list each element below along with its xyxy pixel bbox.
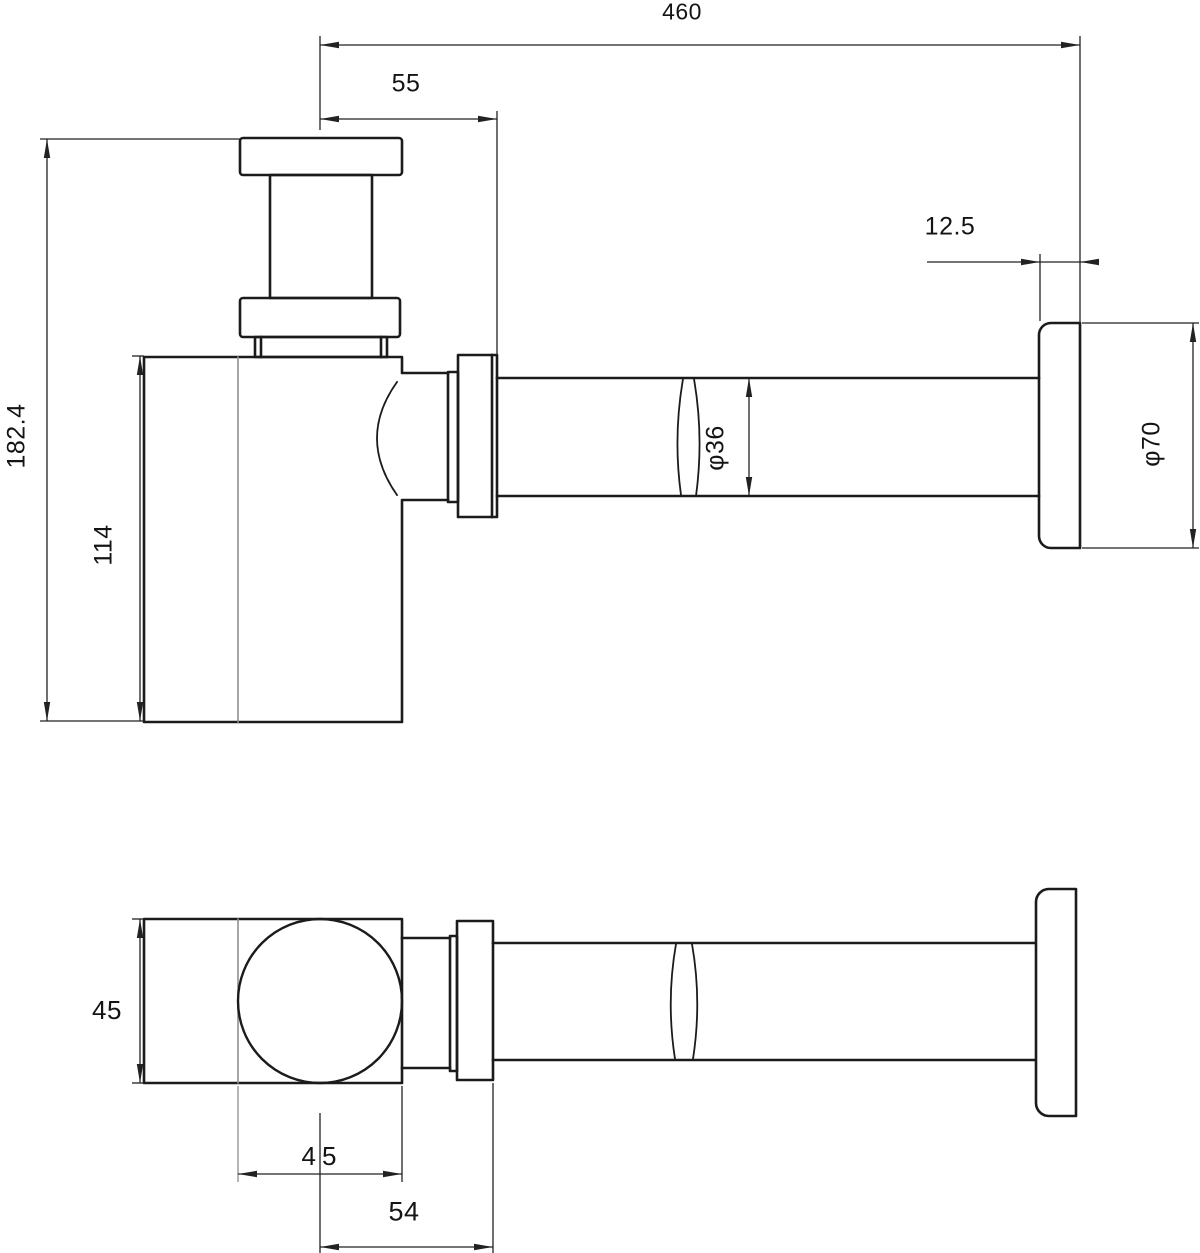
dim-label-flange-diameter: φ70 (1140, 421, 1165, 467)
plan-outlet-nut (457, 921, 493, 1080)
tailpiece-neck (270, 175, 372, 298)
dim-label-flange-depth: 12.5 (925, 215, 976, 240)
pipe-break-right (694, 379, 700, 496)
dimension-linework (40, 36, 1199, 1253)
tailpiece-top-flange (240, 138, 402, 175)
dim-label-plan-body-depth: 45 (92, 997, 122, 1023)
plan-body-outline (144, 919, 402, 1083)
wall-flange-outline (1039, 323, 1080, 548)
dim-label-centre-to-nut: 55 (392, 72, 421, 97)
tailpiece-lower-flange (240, 298, 400, 337)
pipe-break-left (677, 379, 683, 495)
plan-wall-flange-outline (1036, 889, 1076, 1116)
drawing-linework (0, 0, 1200, 1253)
dim-label-body-height: 114 (92, 524, 117, 565)
plan-view (144, 889, 1076, 1116)
plan-pipe-break-left (671, 944, 676, 1059)
plan-pipe-break-right (692, 944, 697, 1059)
dim-label-overall-length: 460 (662, 1, 702, 24)
outlet-washer (448, 372, 458, 502)
tailpiece-washer (255, 337, 387, 357)
plan-bottle-circle (238, 919, 402, 1083)
trap-internal-curve (377, 382, 397, 495)
dim-label-pipe-diameter: φ36 (704, 425, 729, 471)
dim-label-plan-body-width: 45 (302, 1143, 343, 1169)
trap-body-outline (144, 357, 448, 722)
dimension-arrowheads (44, 42, 1196, 1250)
dim-label-plan-centre-to-nut: 54 (388, 1199, 419, 1226)
dim-label-overall-height: 182.4 (5, 403, 30, 468)
technical-drawing-canvas: 460 55 12.5 φ36 φ70 182.4 114 45 45 54 (0, 0, 1200, 1253)
